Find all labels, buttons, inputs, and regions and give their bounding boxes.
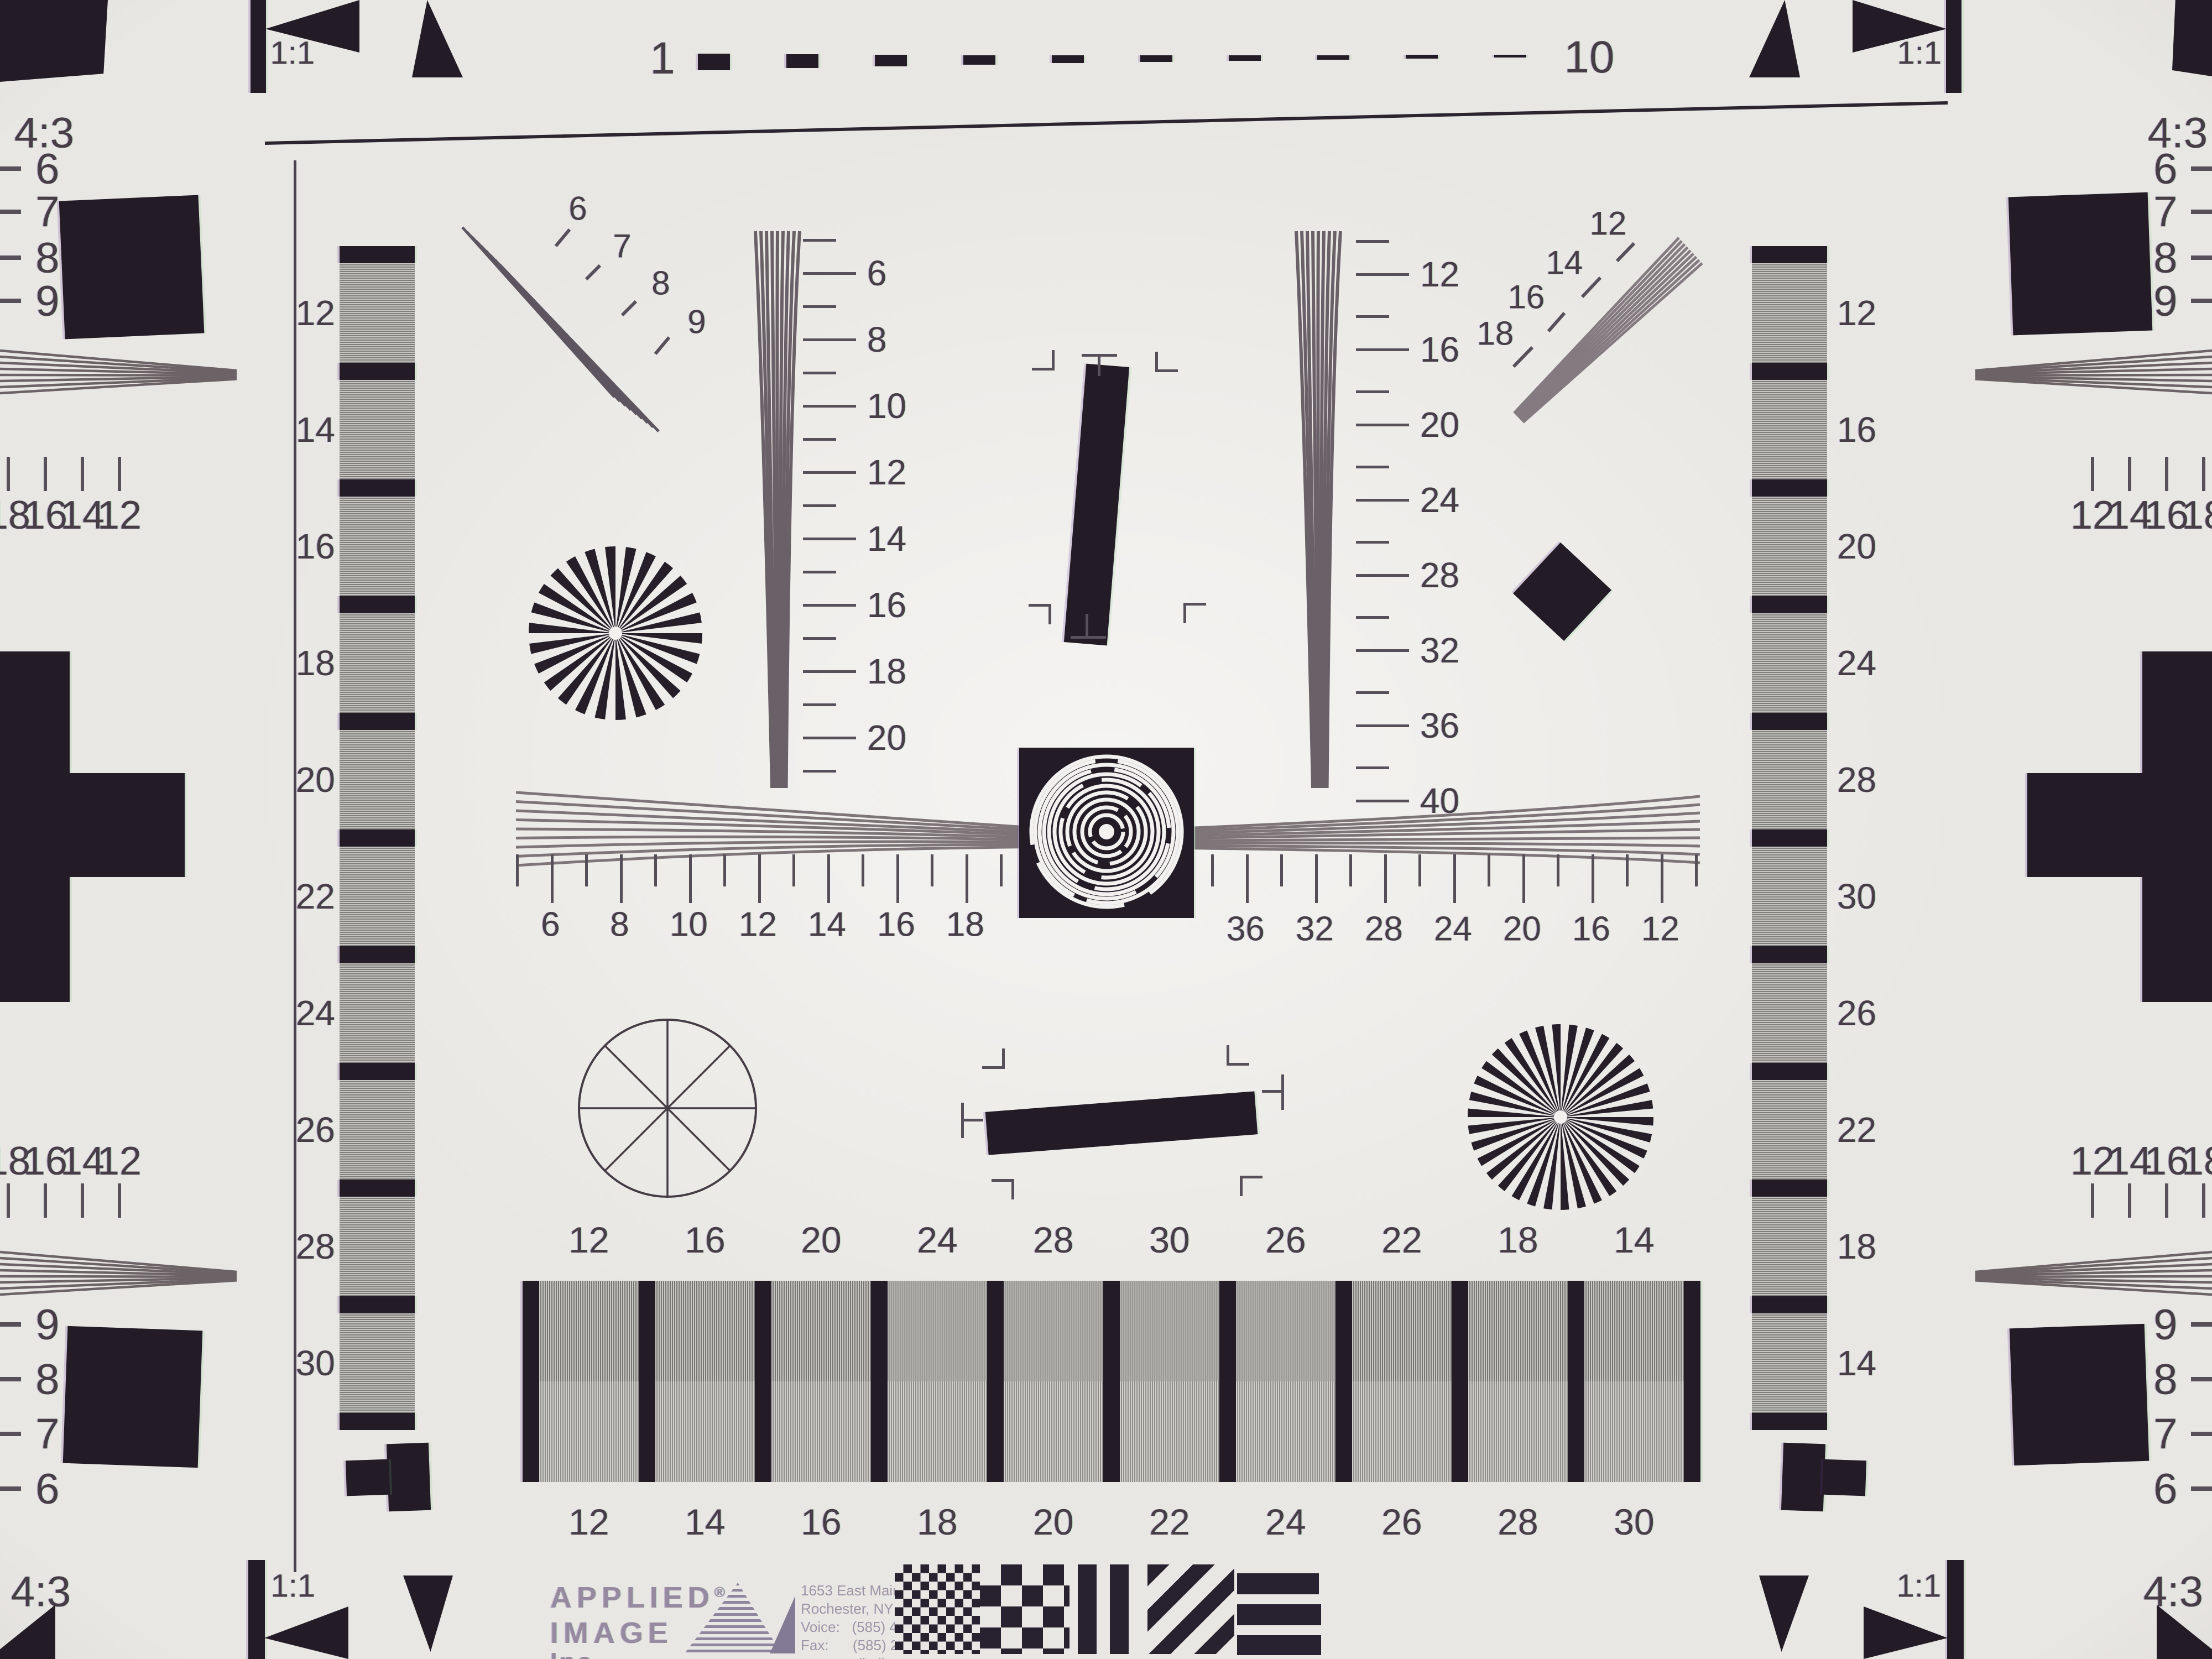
grating-strip-cell-bottom [539,1381,639,1482]
grating-strip-bottom-label: 24 [1265,1501,1306,1543]
left-grayscale-column-grating-segment [340,1313,415,1413]
registration-bracket [992,1179,1014,1199]
edge-mid-right-lower-label: 18 [2182,1139,2212,1184]
right-grayscale-column-grating-segment [1752,497,1827,596]
right-grayscale-column-separator [1752,1180,1827,1197]
vertical-wedge-right [1293,227,1376,796]
right-grayscale-column-grating-segment [1752,380,1827,479]
grating-strip-cell-bottom [1236,1381,1335,1482]
ruler-right-label: 32 [1296,910,1334,949]
ruler-right-label: 20 [1503,910,1541,949]
horizontal-wedge-right [1193,788,1702,890]
black-square-bottom-right [2010,1324,2150,1465]
left-grayscale-column-separator [340,1296,415,1313]
grating-strip-separator [1335,1281,1352,1482]
vertical-wedge-right-scale-tick-short [1356,390,1389,393]
vertical-wedge-right-scale-tick-short [1356,691,1389,694]
edge-scale-left-top-tick [0,166,21,171]
edge-mid-left-lower-label: 12 [97,1139,142,1184]
ratio-label-top-right: 1:1 [1897,35,1942,72]
vertical-wedge-left-scale-tick-long [803,670,856,673]
ruler-left-tick [723,854,726,886]
ruler-right-label: 12 [1641,910,1679,949]
left-grayscale-column-separator [340,479,415,497]
registration-bracket [1155,352,1178,372]
ruler-left-tick [1000,854,1003,886]
ruler-left-tick [654,854,657,886]
horizontal-wedge-left [514,788,1020,890]
diagonal-fan-top-right-label: 18 [1477,315,1514,353]
vertical-wedge-right-scale-tick-short [1356,466,1389,468]
right-grayscale-column-grating-segment [1752,263,1827,363]
resolution-test-chart: 1:1 1:1 1:1 1:1 4:3 4:3 4:3 4:3 1 10 APP… [0,0,2212,1659]
vertical-bar-pattern-1 [1078,1564,1097,1654]
vertical-wedge-left [752,227,835,796]
left-grayscale-column-separator [340,713,415,730]
right-grayscale-column-grating-segment [1752,730,1827,830]
edge-mid-right-upper-tick [2091,457,2094,491]
grating-strip-bottom-label: 16 [801,1501,841,1543]
vertical-wedge-right-scale-label: 36 [1420,705,1459,746]
vertical-wedge-left-scale-label: 12 [867,452,906,493]
edge-fan-left-upper [0,347,239,398]
black-square-top-right [2008,192,2153,336]
right-grayscale-column-separator [1752,363,1827,380]
right-grayscale-column-separator [1752,830,1827,847]
grating-strip-cell-top [1120,1281,1219,1381]
vertical-wedge-right-scale-tick-short [1356,240,1389,243]
vertical-wedge-right-scale-tick-long [1356,424,1409,426]
vertical-wedge-left-scale-tick-long [803,471,856,474]
vertical-wedge-right-scale-label: 24 [1420,479,1459,520]
vertical-wedge-left-scale-tick-long [803,538,856,540]
grating-strip-cell-bottom [888,1381,987,1482]
ruler-left-tick [966,854,968,903]
vertical-wedge-left-scale-tick-short [803,770,836,773]
edge-mid-left-upper-tick [7,457,10,491]
grating-strip-bottom-label: 28 [1498,1501,1538,1543]
edge-scale-right-bottom-tick [2191,1322,2212,1327]
vertical-wedge-right-scale-label: 16 [1420,329,1459,370]
aspect-label-bottom-left: 4:3 [11,1567,71,1617]
diagonal-fan-top-right-label: 16 [1508,278,1545,316]
grating-strip-bottom-label: 26 [1381,1501,1422,1543]
right-grayscale-column-label: 22 [1837,1109,1876,1150]
edge-scale-right-bottom-tick [2191,1486,2212,1491]
diagonal-fan-top-left [456,188,722,448]
t-target-left-arm [0,773,185,877]
left-grayscale-column-label: 16 [296,526,335,567]
vertical-wedge-left-scale-label: 6 [867,253,887,294]
left-grayscale-column-separator [340,596,415,613]
right-grayscale-column-separator [1752,1063,1827,1080]
vertical-wedge-left-scale-label: 14 [867,518,906,559]
edge-mid-right-upper-tick [2202,457,2205,491]
vertical-wedge-left-scale-tick-short [803,571,836,573]
edge-mid-left-lower-tick [44,1183,47,1218]
ruler-left-tick [516,854,519,886]
edge-scale-left-top-tick [0,255,21,260]
edge-scale-left-bottom-label: 6 [35,1464,59,1514]
grating-strip-bottom-label: 12 [568,1501,609,1543]
grating-strip-cell-top [1352,1281,1452,1381]
edge-fan-right-lower [1973,1249,2212,1300]
grating-strip-cell-bottom [1004,1381,1103,1482]
edge-mid-right-upper-label: 18 [2182,493,2212,538]
grating-strip-cell-top [1468,1281,1568,1381]
aspect-label-bottom-right: 4:3 [2143,1567,2203,1617]
ruler-right-tick [1418,854,1421,886]
fiducial-bar-top-left [251,0,266,93]
left-grayscale-column-label: 12 [296,293,335,333]
grating-strip-separator [1684,1281,1700,1482]
edge-scale-left-bottom-tick [0,1322,21,1327]
top-scale-dash [1406,55,1438,59]
left-grayscale-column-grating-segment [340,497,415,596]
siemens-star-right [1468,1024,1653,1210]
ruler-right-label: 24 [1434,910,1472,949]
left-grayscale-column-separator [340,1063,415,1080]
edge-scale-left-top-label: 7 [35,187,59,237]
left-grayscale-column-grating-segment [340,263,415,363]
ruler-right-tick [1453,854,1456,903]
bullseye-rings [1019,748,1194,918]
vertical-wedge-left-scale-tick-long [803,272,856,275]
edge-mid-right-lower-tick [2165,1183,2168,1218]
vertical-wedge-left-scale-tick-short [803,239,836,242]
ruler-left-tick [585,854,588,886]
ratio-label-bottom-left: 1:1 [271,1568,316,1605]
registration-t-mark [1098,354,1100,376]
grating-strip-top-label: 30 [1149,1219,1190,1261]
ruler-left-tick [931,854,933,886]
ruler-right-tick [1488,854,1490,886]
horizontal-bar-pattern-3 [1237,1635,1321,1655]
company-name-line2: IMAGE [550,1616,673,1650]
left-grayscale-column-label: 14 [296,409,335,450]
ruler-right-tick [1557,854,1559,886]
ruler-left-tick [862,854,864,886]
grating-strip-cell-top [771,1281,871,1381]
registration-bracket [982,1048,1005,1069]
grating-strip-top-label: 26 [1265,1219,1306,1261]
vertical-wedge-right-scale-tick-long [1356,574,1409,577]
vertical-wedge-left-scale-tick-long [803,737,856,739]
right-grayscale-column-label: 20 [1837,526,1876,567]
fiducial-bar-bottom-left [248,1560,265,1659]
left-grayscale-column-label: 24 [296,993,335,1034]
edge-scale-right-top-tick [2191,299,2212,303]
t-target-right-arm [2027,773,2212,877]
left-grayscale-column-grating-segment [340,963,415,1063]
edge-mid-right-lower-tick [2128,1183,2131,1218]
black-square-bottom-left [63,1326,203,1468]
ruler-left-label: 16 [877,905,915,945]
edge-scale-right-top-label: 9 [2153,276,2177,326]
horizontal-bar-pattern-1 [1237,1573,1319,1594]
edge-scale-right-bottom-label: 9 [2153,1300,2177,1350]
grating-strip-top-label: 18 [1498,1219,1538,1261]
ruler-right-tick [1384,854,1387,903]
edge-scale-right-top-tick [2191,210,2212,214]
edge-scale-right-bottom-label: 7 [2153,1409,2177,1459]
corner-block-top-left [0,0,108,82]
top-scale-dash [875,55,907,66]
ruler-right-tick [1592,854,1594,903]
right-grayscale-column-separator [1752,946,1827,963]
grating-strip-top-label: 28 [1033,1219,1073,1261]
grating-strip-separator [1103,1281,1120,1482]
grating-strip-top-label: 20 [801,1219,841,1261]
ruler-left-tick [551,854,554,903]
grating-strip-cell-top [539,1281,639,1381]
ruler-left-tick [827,854,830,903]
ruler-left-tick [896,854,899,903]
ruler-left-label: 6 [541,905,560,945]
edge-scale-right-top-tick [2191,166,2212,171]
vertical-wedge-left-scale-label: 18 [867,651,906,692]
vertical-wedge-right-scale-tick-short [1356,766,1389,769]
vertical-wedge-right-scale-tick-long [1356,499,1409,502]
ruler-right-tick [1695,854,1698,886]
top-scale-dash [963,55,995,65]
t-piece-bottom-right-h [1822,1459,1866,1496]
grating-strip-separator [1568,1281,1584,1482]
vertical-wedge-left-scale-tick-long [803,604,856,607]
ruler-right-tick [1211,854,1214,886]
grating-strip-separator [987,1281,1004,1482]
left-grayscale-column-separator [340,246,415,263]
right-grayscale-column-label: 12 [1837,293,1876,333]
ruler-right-label: 16 [1572,910,1610,949]
vertical-wedge-left-scale-label: 10 [867,385,906,426]
grating-strip-cell-top [655,1281,755,1381]
fiducial-bar-bottom-right [1947,1560,1964,1659]
registered-trademark-icon: ® [714,1584,725,1600]
edge-mid-left-lower-tick [118,1183,121,1218]
right-grayscale-column-label: 18 [1837,1226,1876,1267]
grating-strip-top-label: 12 [568,1219,609,1261]
grating-strip-cell-bottom [1120,1381,1219,1482]
right-grayscale-column-separator [1752,246,1827,263]
edge-mid-right-lower-tick [2091,1183,2094,1218]
vertical-bar-pattern-2 [1110,1564,1129,1654]
right-grayscale-column-separator [1752,596,1827,613]
horizontal-bar-pattern-2 [1237,1604,1321,1625]
edge-mid-left-lower-tick [81,1183,84,1218]
t-piece-bottom-left-h [346,1459,390,1496]
ratio-label-top-left: 1:1 [270,35,315,72]
top-scale-dash [1052,55,1084,63]
edge-scale-right-bottom-tick [2191,1377,2212,1381]
grating-strip-cell-bottom [1584,1381,1684,1482]
ruler-left-tick [792,854,795,886]
ruler-left-label: 18 [946,905,984,945]
left-grayscale-column-grating-segment [340,730,415,830]
grating-strip-cell-top [1004,1281,1103,1381]
vertical-wedge-right-scale-tick-long [1356,724,1409,727]
grating-strip-bottom-label: 22 [1149,1501,1190,1543]
right-grayscale-column-label: 26 [1837,993,1876,1034]
edge-scale-left-top-tick [0,210,21,214]
edge-mid-left-lower-tick [7,1183,10,1218]
ruler-right-tick [1280,854,1283,886]
right-grayscale-column-label: 16 [1837,409,1876,450]
right-grayscale-column-separator [1752,1296,1827,1313]
edge-fan-right-upper [1973,347,2212,398]
diagonal-fan-top-left-label: 9 [687,303,706,341]
ruler-left-tick [689,854,692,903]
grating-strip-bottom-label: 14 [685,1501,725,1543]
vertical-wedge-right-scale-tick-short [1356,616,1389,619]
ruler-right-label: 36 [1227,910,1265,949]
left-grayscale-column-separator [340,1180,415,1197]
ruler-left-label: 14 [808,905,846,945]
ruler-left-label: 10 [670,905,708,945]
grating-strip-top-label: 16 [685,1219,725,1261]
left-grayscale-column-separator [340,1413,415,1430]
ruler-left-label: 12 [739,905,777,945]
top-scale-dash [1317,55,1349,60]
frame-line-top [265,97,1948,153]
diagonal-fan-top-left-label: 7 [613,227,631,265]
grating-strip-separator [1219,1281,1236,1482]
siemens-star-left [529,546,702,720]
top-scale-start-label: 1 [650,33,675,85]
top-scale-dash [698,54,730,70]
top-scale-dash [1140,55,1172,62]
left-grayscale-column-grating-segment [340,1080,415,1180]
right-grayscale-column-label: 28 [1837,759,1876,800]
left-grayscale-column-label: 30 [296,1343,335,1384]
edge-scale-left-top-label: 9 [35,276,59,326]
top-scale-dash [786,54,818,68]
edge-scale-right-top-label: 7 [2153,187,2177,237]
ruler-left-label: 8 [610,905,629,945]
vertical-wedge-left-scale-label: 8 [867,319,887,360]
fiducial-bar-top-right [1946,0,1961,93]
left-grayscale-column-grating-segment [340,1197,415,1296]
vertical-wedge-right-scale-label: 32 [1420,630,1459,671]
left-grayscale-column-separator [340,946,415,963]
edge-scale-left-bottom-label: 9 [35,1300,59,1350]
registration-bracket [1183,603,1206,623]
right-grayscale-column-label: 30 [1837,876,1876,917]
grating-strip-separator [755,1281,771,1482]
edge-scale-right-bottom-label: 6 [2153,1464,2177,1514]
vertical-wedge-left-scale-tick-long [803,405,856,408]
grating-strip-cell-bottom [771,1381,871,1482]
spoke-circle [575,1016,760,1201]
edge-mid-left-upper-tick [81,457,84,491]
top-scale-end-label: 10 [1564,32,1614,84]
registration-bracket [1029,604,1051,624]
left-grayscale-column-grating-segment [340,380,415,479]
ratio-label-bottom-right: 1:1 [1897,1568,1942,1605]
grating-strip-top-label: 24 [917,1219,957,1261]
left-grayscale-column-separator [340,363,415,380]
grating-strip-top-label: 22 [1381,1219,1422,1261]
right-grayscale-column-label: 14 [1837,1343,1876,1384]
edge-mid-right-lower-tick [2202,1183,2205,1218]
edge-mid-right-upper-tick [2128,457,2131,491]
registration-bracket [1032,350,1055,371]
edge-scale-right-bottom-label: 8 [2153,1354,2177,1405]
vertical-wedge-left-scale-tick-short [803,504,836,507]
right-grayscale-column-grating-segment [1752,1313,1827,1413]
registration-bracket [1240,1176,1262,1196]
left-grayscale-column-label: 18 [296,643,335,684]
edge-scale-right-bottom-tick [2191,1432,2212,1436]
registration-t-mark [1071,636,1106,639]
diagonal-fan-top-left-label: 8 [651,264,670,302]
grating-strip-cell-bottom [1352,1381,1452,1482]
diagonal-fan-top-right-label: 14 [1546,244,1583,282]
black-square-top-left [59,195,205,340]
vertical-wedge-right-scale-label: 28 [1420,555,1459,596]
left-grayscale-column-grating-segment [340,613,415,713]
ruler-right-tick [1522,854,1525,903]
right-grayscale-column-grating-segment [1752,847,1827,946]
grating-strip-cell-bottom [655,1381,755,1482]
vertical-wedge-left-scale-tick-short [803,637,836,640]
vertical-wedge-right-scale-tick-long [1356,273,1409,276]
left-grayscale-column-label: 22 [296,876,335,917]
vertical-wedge-left-scale-label: 16 [867,585,906,625]
vertical-wedge-left-scale-tick-short [803,703,836,706]
ruler-right-tick [1349,854,1352,886]
edge-scale-left-bottom-label: 8 [35,1354,59,1405]
diagonal-fan-top-left-label: 6 [568,190,587,228]
edge-mid-left-upper-tick [44,457,47,491]
grating-strip-bottom-label: 20 [1033,1501,1073,1543]
right-grayscale-column-grating-segment [1752,1080,1827,1180]
vertical-wedge-right-scale-tick-long [1356,649,1409,652]
edge-scale-left-bottom-tick [0,1432,21,1436]
grating-strip-bottom-label: 18 [917,1501,957,1543]
right-grayscale-column-separator [1752,1413,1827,1430]
t-piece-bottom-right-v [1781,1443,1825,1512]
grating-strip-separator [639,1281,655,1482]
checkerboard-fine [895,1564,980,1654]
grating-strip-cell-bottom [1468,1381,1568,1482]
ruler-left-tick [758,854,761,903]
company-name-line1: APPLIED® [550,1580,725,1615]
edge-mid-left-upper-tick [118,457,121,491]
vertical-wedge-left-scale-tick-short [803,438,836,441]
edge-scale-left-bottom-tick [0,1377,21,1381]
registration-t-mark [1086,614,1088,636]
right-grayscale-column-grating-segment [1752,613,1827,713]
corner-block-top-right [2172,0,2212,76]
registration-t-mark [1262,1090,1284,1093]
right-grayscale-column-separator [1752,479,1827,497]
grating-strip-cell-top [1584,1281,1684,1381]
grating-strip-separator [523,1281,539,1482]
edge-scale-left-bottom-tick [0,1486,21,1491]
vertical-wedge-left-scale-tick-short [803,305,836,308]
right-grayscale-column-grating-segment [1752,963,1827,1063]
grating-strip-top-label: 14 [1614,1219,1654,1261]
edge-scale-right-top-tick [2191,255,2212,260]
edge-mid-right-upper-tick [2165,457,2168,491]
vertical-wedge-left-scale-tick-long [803,338,856,341]
ruler-right-tick [1626,854,1629,886]
left-grayscale-column-label: 28 [296,1226,335,1267]
vertical-wedge-left-scale-label: 20 [867,717,906,758]
vertical-wedge-left-scale-tick-short [803,372,836,374]
grating-strip-separator [1452,1281,1468,1482]
